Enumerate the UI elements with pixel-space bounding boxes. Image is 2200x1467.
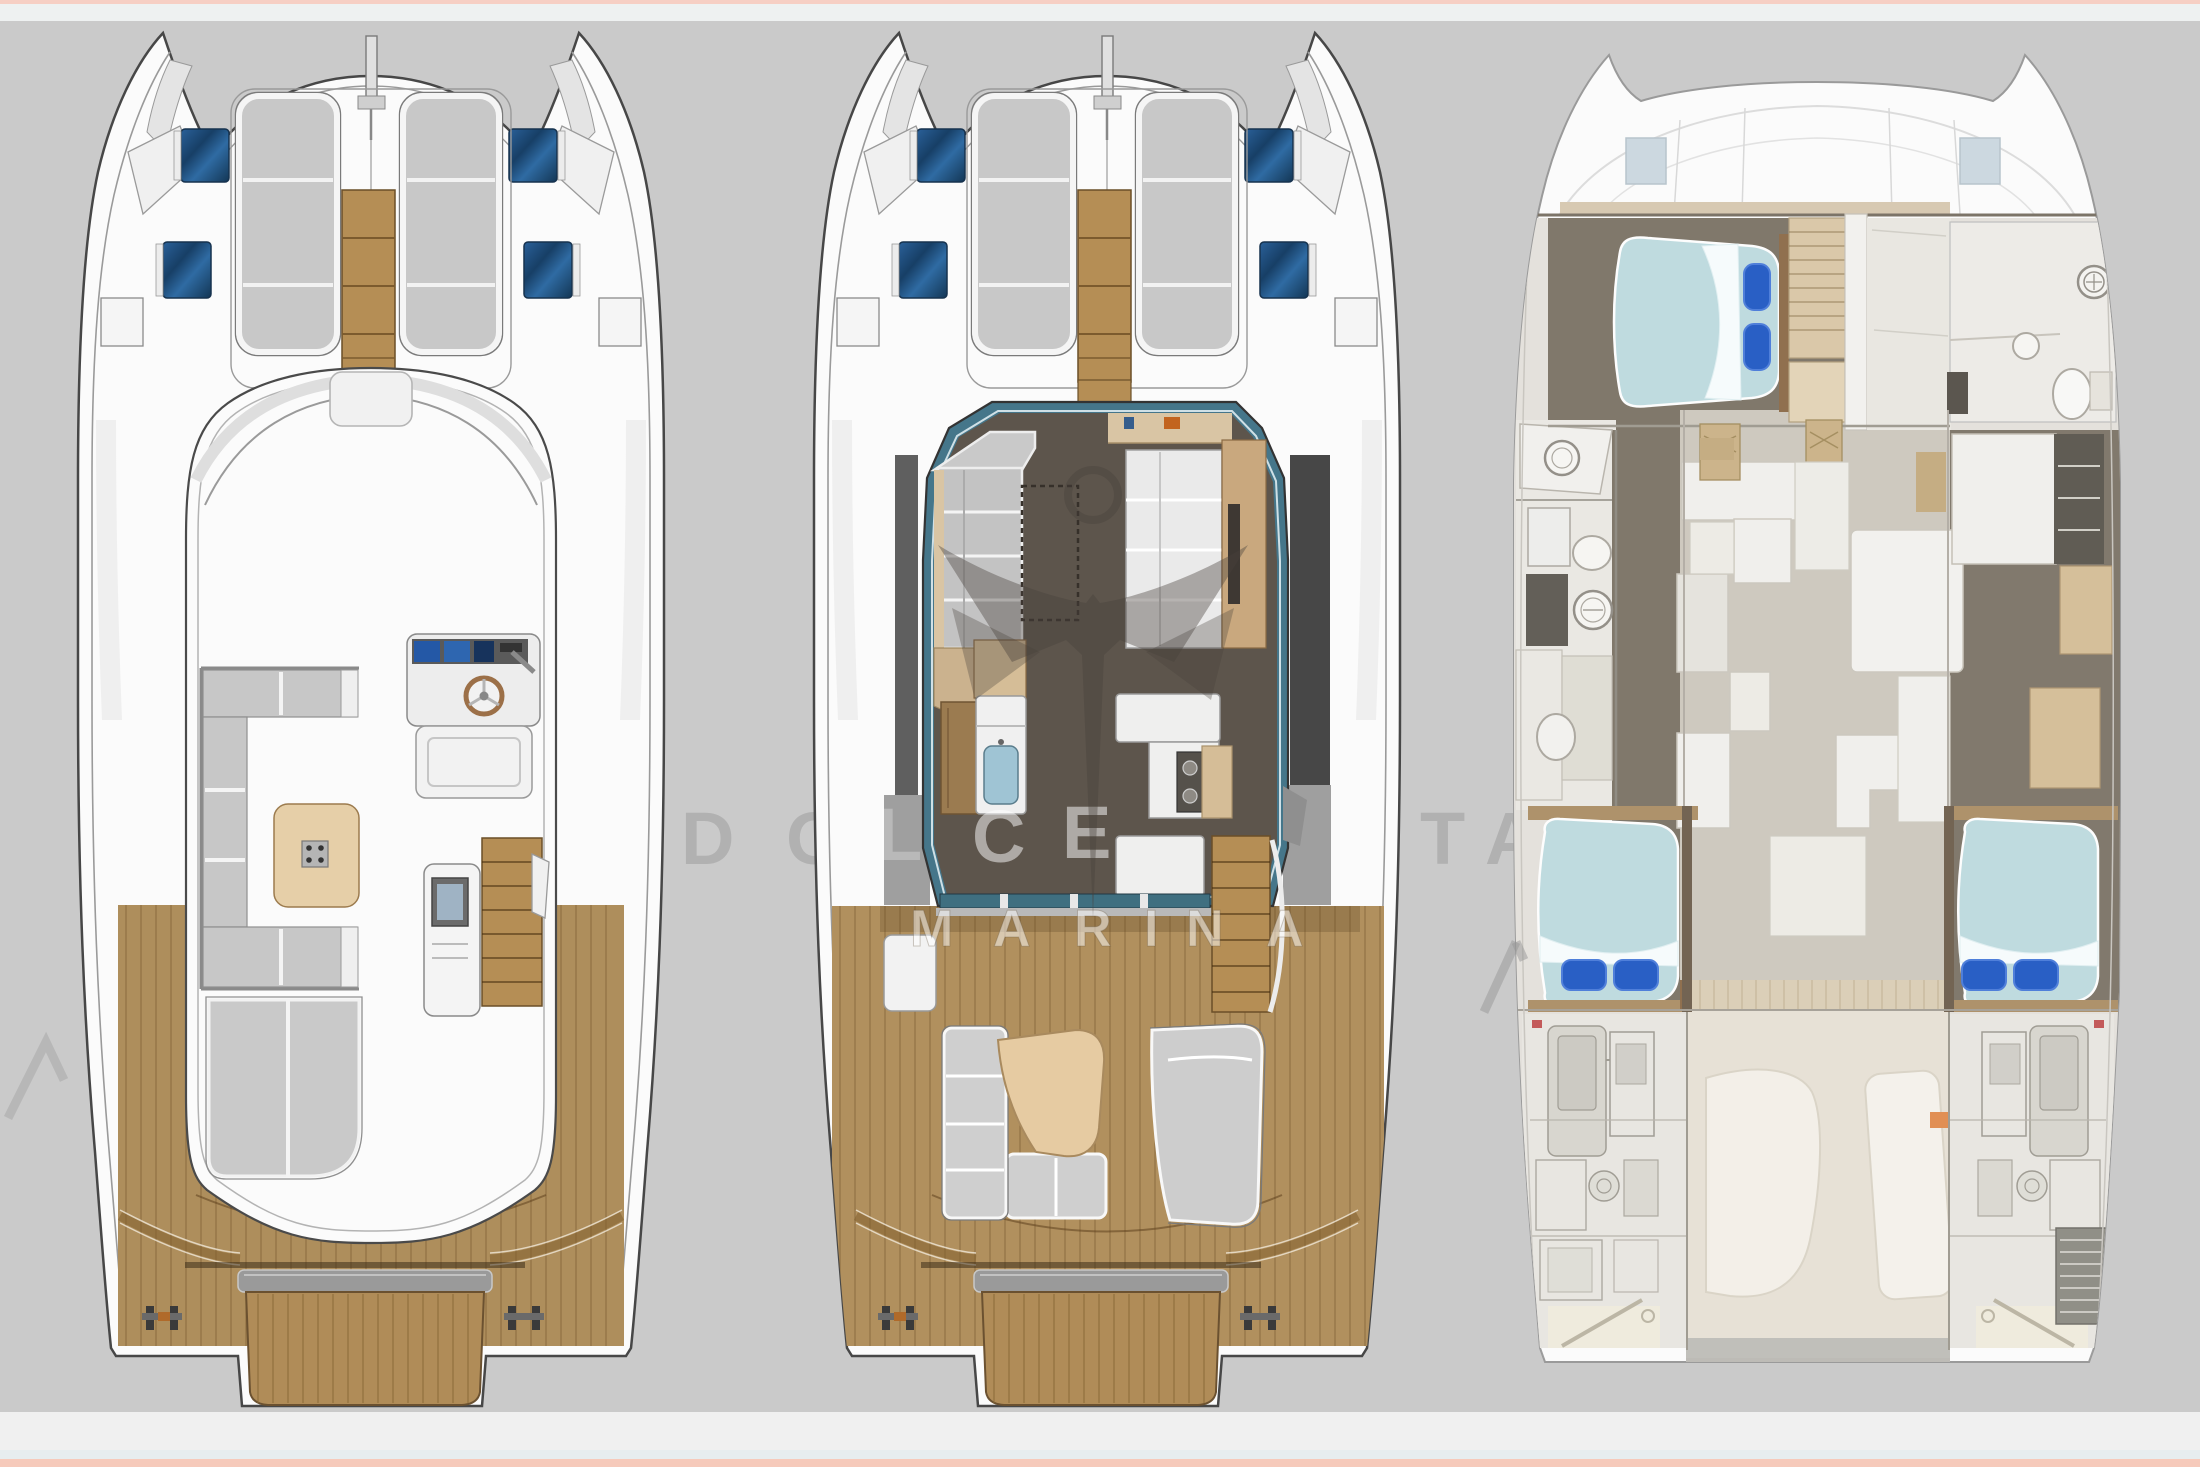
svg-text:A: A — [1266, 900, 1304, 958]
svg-text:D: D — [681, 797, 734, 880]
svg-text:M: M — [910, 900, 953, 958]
svg-text:E: E — [1062, 791, 1111, 874]
svg-text:T: T — [1420, 797, 1465, 880]
svg-text:N: N — [1186, 900, 1224, 958]
svg-text:I: I — [1144, 900, 1158, 958]
svg-text:A: A — [993, 900, 1031, 958]
svg-text:C: C — [972, 795, 1025, 878]
svg-text:L: L — [877, 793, 922, 876]
